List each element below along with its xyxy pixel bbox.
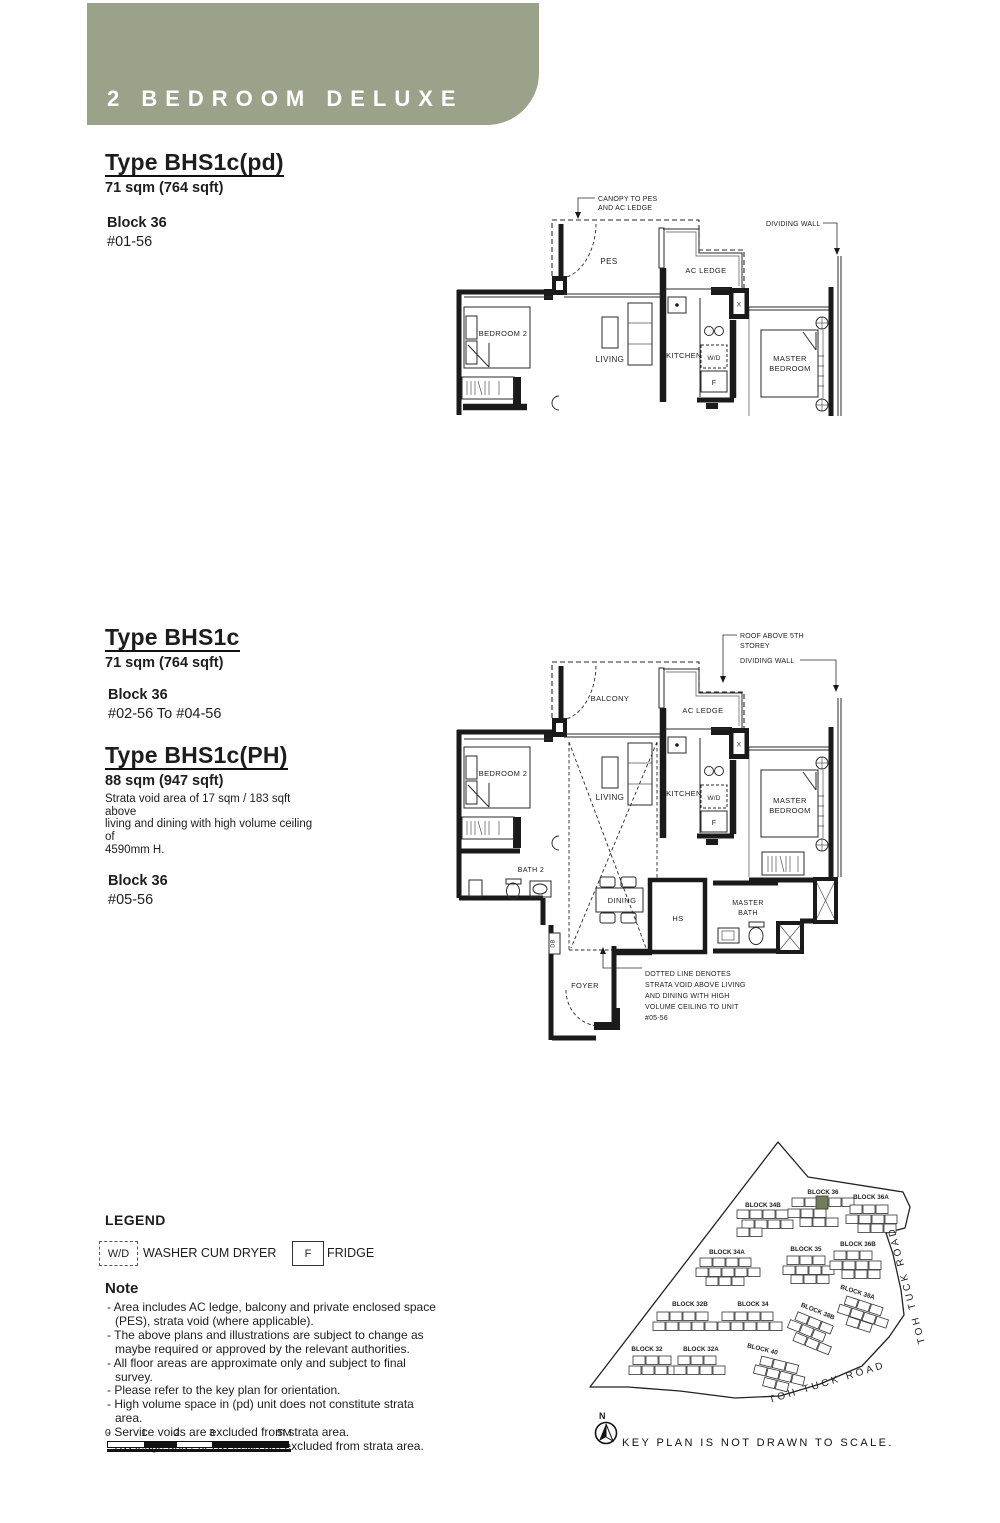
unit-pd-info: Type BHS1c(pd) 71 sqm (764 sqft) Block 3… xyxy=(105,150,284,250)
keyplan-block-label: BLOCK 34A xyxy=(709,1249,745,1256)
room-label-wd: W/D xyxy=(707,795,720,802)
room-label-fridge: F xyxy=(712,820,716,827)
room-label-hs: HS xyxy=(672,914,683,923)
room-label-foyer: FOYER xyxy=(571,981,599,990)
keyplan-unit xyxy=(742,1220,754,1229)
keyplan-unit xyxy=(814,1209,826,1218)
keyplan-unit xyxy=(653,1322,665,1331)
keyplan-unit xyxy=(700,1366,712,1375)
legend-title: LEGEND xyxy=(105,1212,525,1228)
keyplan-unit-highlighted xyxy=(816,1196,828,1209)
keyplan-unit xyxy=(761,1312,773,1321)
keyplan-unit xyxy=(709,1268,721,1277)
keyplan-unit xyxy=(718,1322,730,1331)
wd-symbol: W/D xyxy=(99,1241,138,1266)
plan2-shaft-box: X xyxy=(729,728,749,759)
room-label-dining: DINING xyxy=(608,896,637,905)
keyplan-unit xyxy=(843,1261,855,1270)
room-label-bedroom2: BEDROOM 2 xyxy=(479,329,528,338)
unit-std-levels: #02-56 To #04-56 xyxy=(108,706,315,722)
keyplan-unit xyxy=(826,1218,838,1227)
note-item: - Area includes AC ledge, balcony and pr… xyxy=(105,1301,439,1329)
keyplan-unit xyxy=(800,1256,812,1265)
room-label-master-bedroom: MASTER xyxy=(773,796,807,805)
unit-ph-block: Block 36 xyxy=(108,873,315,889)
unit-ph-area: 88 sqm (947 sqft) xyxy=(105,773,315,789)
room-label-pes: PES xyxy=(600,257,617,266)
keyplan-unit xyxy=(763,1377,777,1388)
unit-pd-levels: #01-56 xyxy=(107,234,284,250)
keyplan-unit xyxy=(785,1362,799,1373)
keyplan-unit xyxy=(750,1228,762,1237)
void-note: DOTTED LINE DENOTES xyxy=(645,971,731,978)
scale-tick: 2 xyxy=(174,1427,180,1439)
keyplan-unit xyxy=(768,1220,780,1229)
north-compass-icon: N xyxy=(596,1411,617,1444)
keyplan-unit xyxy=(842,1270,854,1279)
room-label-kitchen: KITCHEN xyxy=(666,789,702,798)
keyplan-unit xyxy=(655,1366,667,1375)
svg-text:#05-56: #05-56 xyxy=(645,1015,668,1022)
keyplan-unit xyxy=(722,1268,734,1277)
keyplan-unit xyxy=(696,1268,708,1277)
key-plan: BLOCK 34BBLOCK 36BLOCK 36ABLOCK 34ABLOCK… xyxy=(580,1115,1000,1460)
plan1-canopy-dashed xyxy=(552,220,744,290)
unit-ph-title: Type BHS1c(PH) xyxy=(105,743,288,770)
keyplan-unit xyxy=(713,1258,725,1267)
keyplan-unit xyxy=(687,1366,699,1375)
note-item: - High volume space in (pd) unit does no… xyxy=(105,1398,439,1426)
keyplan-unit xyxy=(737,1228,749,1237)
svg-text:BEDROOM: BEDROOM xyxy=(769,364,811,373)
keyplan-unit xyxy=(739,1258,751,1267)
keyplan-unit xyxy=(817,1275,829,1284)
room-label-fridge: F xyxy=(712,380,716,387)
keyplan-unit xyxy=(735,1268,747,1277)
keyplan-unit xyxy=(829,1198,841,1207)
unit-ph-strata-note: Strata void area of 17 sqm / 183 sqft ab… xyxy=(105,793,315,856)
canopy-note: CANOPY TO PES xyxy=(598,196,658,203)
keyplan-unit xyxy=(856,1261,868,1270)
page-title: 2 BEDROOM DELUXE xyxy=(87,86,464,125)
keyplan-unit xyxy=(700,1258,712,1267)
keyplan-caption: KEY PLAN IS NOT DRAWN TO SCALE. xyxy=(622,1437,894,1449)
keyplan-unit xyxy=(855,1270,867,1279)
keyplan-unit xyxy=(763,1210,775,1219)
wd-label: WASHER CUM DRYER xyxy=(143,1246,276,1260)
note-item: - The above plans and illustrations are … xyxy=(105,1329,439,1357)
keyplan-unit xyxy=(722,1312,734,1321)
keyplan-unit xyxy=(830,1261,842,1270)
keyplan-unit xyxy=(850,1205,862,1214)
keyplan-unit xyxy=(691,1356,703,1365)
keyplan-unit xyxy=(692,1322,704,1331)
keyplan-unit xyxy=(779,1371,793,1382)
keyplan-unit xyxy=(726,1258,738,1267)
scale-tick: 5M xyxy=(277,1427,292,1439)
keyplan-unit xyxy=(863,1205,875,1214)
keyplan-block-label: BLOCK 32A xyxy=(683,1346,719,1353)
keyplan-unit xyxy=(683,1312,695,1321)
room-label-kitchen: KITCHEN xyxy=(666,351,702,360)
keyplan-unit xyxy=(781,1220,793,1229)
unit-std-title: Type BHS1c xyxy=(105,625,240,652)
unit-std-area: 71 sqm (764 sqft) xyxy=(105,655,315,671)
svg-text:AND AC LEDGE: AND AC LEDGE xyxy=(598,205,652,212)
keyplan-unit xyxy=(800,1218,812,1227)
room-label-ac-ledge: AC LEDGE xyxy=(682,706,723,715)
keyplan-unit xyxy=(847,1251,859,1260)
keyplan-unit xyxy=(732,1277,744,1286)
keyplan-unit xyxy=(670,1312,682,1321)
svg-text:BATH: BATH xyxy=(738,910,758,917)
plan1-shaft-box: X xyxy=(729,288,749,319)
keyplan-block-label: BLOCK 38A xyxy=(839,1284,876,1302)
keyplan-unit xyxy=(679,1322,691,1331)
fridge-symbol: F xyxy=(292,1241,324,1266)
room-label-living: LIVING xyxy=(596,793,625,802)
unit-std-block: Block 36 xyxy=(108,687,315,703)
note-title: Note xyxy=(105,1280,439,1297)
keyplan-unit xyxy=(868,1270,880,1279)
keyplan-unit xyxy=(770,1322,782,1331)
floorplan-page: 2 BEDROOM DELUXE Type BHS1c(pd) 71 sqm (… xyxy=(0,0,1000,1523)
keyplan-unit xyxy=(813,1218,825,1227)
keyplan-unit xyxy=(755,1220,767,1229)
room-label-bedroom2: BEDROOM 2 xyxy=(479,769,528,778)
keyplan-unit xyxy=(858,1224,870,1233)
keyplan-unit xyxy=(642,1366,654,1375)
scale-tick: 3 xyxy=(209,1427,215,1439)
keyplan-unit xyxy=(629,1366,641,1375)
keyplan-block-label: BLOCK 35 xyxy=(790,1246,822,1253)
plan1-annotations: CANOPY TO PES AND AC LEDGE DIVIDING WALL xyxy=(575,196,840,255)
svg-text:STRATA VOID ABOVE LIVING: STRATA VOID ABOVE LIVING xyxy=(645,982,746,989)
keyplan-block-label: BLOCK 36A xyxy=(853,1194,889,1201)
keyplan-unit xyxy=(753,1365,767,1376)
road-label-right: TOH TUCK ROAD xyxy=(886,1225,928,1345)
keyplan-unit xyxy=(748,1268,760,1277)
keyplan-unit xyxy=(731,1322,743,1331)
keyplan-unit xyxy=(788,1209,800,1218)
unit-pd-block: Block 36 xyxy=(107,215,284,231)
unit-pd-title: Type BHS1c(pd) xyxy=(105,150,284,177)
keyplan-unit xyxy=(719,1277,731,1286)
keyplan-unit xyxy=(872,1215,884,1224)
svg-text:VOLUME CEILING TO UNIT: VOLUME CEILING TO UNIT xyxy=(645,1004,739,1011)
keyplan-block-label: BLOCK 32 xyxy=(631,1346,663,1353)
keyplan-unit xyxy=(791,1275,803,1284)
title-banner: 2 BEDROOM DELUXE xyxy=(87,3,539,125)
keyplan-unit xyxy=(817,1342,831,1354)
keyplan-unit xyxy=(772,1359,786,1370)
scale-tick: 1 xyxy=(141,1427,147,1439)
keyplan-unit xyxy=(787,1256,799,1265)
svg-text:BEDROOM: BEDROOM xyxy=(769,806,811,815)
keyplan-block-label: BLOCK 34 xyxy=(737,1301,769,1308)
keyplan-unit xyxy=(804,1275,816,1284)
shaft-x-label: X xyxy=(737,742,742,749)
keyplan-unit xyxy=(871,1224,883,1233)
fridge-label: FRIDGE xyxy=(327,1246,374,1260)
keyplan-unit xyxy=(674,1366,686,1375)
keyplan-unit xyxy=(735,1312,747,1321)
keyplan-blocks: BLOCK 34BBLOCK 36BLOCK 36ABLOCK 34ABLOCK… xyxy=(629,1189,897,1395)
keyplan-unit xyxy=(809,1266,821,1275)
plan1-walls xyxy=(457,224,831,416)
room-label-master-bedroom: MASTER xyxy=(773,354,807,363)
room-label-living: LIVING xyxy=(596,355,625,364)
db-label: DB xyxy=(551,939,557,947)
scale-bar: 0 1 2 3 5M xyxy=(105,1427,305,1457)
keyplan-unit xyxy=(801,1209,813,1218)
keyplan-unit xyxy=(776,1210,788,1219)
keyplan-unit xyxy=(796,1266,808,1275)
note-item: - All floor areas are approximate only a… xyxy=(105,1357,439,1385)
room-label-wd: W/D xyxy=(707,355,720,362)
keyplan-unit xyxy=(834,1251,846,1260)
keyplan-unit xyxy=(860,1251,872,1260)
keyplan-block-label: BLOCK 40 xyxy=(746,1342,778,1356)
keyplan-unit xyxy=(766,1368,780,1379)
keyplan-unit xyxy=(859,1215,871,1224)
keyplan-unit xyxy=(760,1356,774,1367)
keyplan-unit xyxy=(876,1205,888,1214)
keyplan-unit xyxy=(744,1322,756,1331)
svg-text:AND DINING WITH HIGH: AND DINING WITH HIGH xyxy=(645,993,730,1000)
keyplan-unit xyxy=(678,1356,690,1365)
keyplan-unit xyxy=(713,1366,725,1375)
keyplan-unit xyxy=(696,1312,708,1321)
floor-plan-bhs1c-pd: X PES AC LEDGE B xyxy=(440,185,860,432)
keyplan-block-label: BLOCK 36B xyxy=(840,1241,876,1248)
keyplan-unit xyxy=(666,1322,678,1331)
room-label-balcony: BALCONY xyxy=(591,694,630,703)
keyplan-unit xyxy=(783,1266,795,1275)
keyplan-unit xyxy=(737,1210,749,1219)
dividing-wall-note: DIVIDING WALL xyxy=(766,221,820,228)
floor-plan-bhs1c: X xyxy=(440,620,860,1080)
room-label-bath2: BATH 2 xyxy=(518,867,544,874)
keyplan-unit xyxy=(874,1316,888,1328)
scale-tick: 0 xyxy=(105,1427,111,1439)
keyplan-unit xyxy=(813,1256,825,1265)
svg-text:STOREY: STOREY xyxy=(740,643,770,650)
unit-ph-levels: #05-56 xyxy=(108,892,315,908)
unit-std-ph-info: Type BHS1c 71 sqm (764 sqft) Block 36 #0… xyxy=(105,625,315,908)
room-label-master-bath: MASTER xyxy=(732,900,764,907)
keyplan-unit xyxy=(757,1322,769,1331)
unit-pd-area: 71 sqm (764 sqft) xyxy=(105,180,284,196)
keyplan-unit xyxy=(885,1215,897,1224)
keyplan-unit xyxy=(792,1198,804,1207)
keyplan-unit xyxy=(646,1356,658,1365)
note-item: - Please refer to the key plan for orien… xyxy=(105,1384,439,1398)
keyplan-unit xyxy=(706,1277,718,1286)
keyplan-block-label: BLOCK 32B xyxy=(672,1301,708,1308)
keyplan-unit xyxy=(705,1322,717,1331)
keyplan-unit xyxy=(657,1312,669,1321)
keyplan-unit xyxy=(805,1198,817,1207)
keyplan-unit xyxy=(659,1356,671,1365)
roof-note: ROOF ABOVE 5TH xyxy=(740,633,804,640)
shaft-x-label: X xyxy=(737,302,742,309)
keyplan-unit xyxy=(750,1210,762,1219)
keyplan-unit xyxy=(633,1356,645,1365)
plan2-annotations: ROOF ABOVE 5TH STOREY DIVIDING WALL DOTT… xyxy=(600,633,839,1022)
keyplan-unit xyxy=(704,1356,716,1365)
keyplan-block-label: BLOCK 34B xyxy=(745,1202,781,1209)
keyplan-block-label: BLOCK 36 xyxy=(807,1189,839,1196)
legend: LEGEND W/D WASHER CUM DRYER F FRIDGE xyxy=(105,1212,525,1267)
keyplan-unit xyxy=(846,1215,858,1224)
compass-n-label: N xyxy=(599,1411,606,1421)
room-label-ac-ledge: AC LEDGE xyxy=(685,266,726,275)
dividing-wall-note: DIVIDING WALL xyxy=(740,658,794,665)
keyplan-unit xyxy=(869,1261,881,1270)
keyplan-unit xyxy=(748,1312,760,1321)
